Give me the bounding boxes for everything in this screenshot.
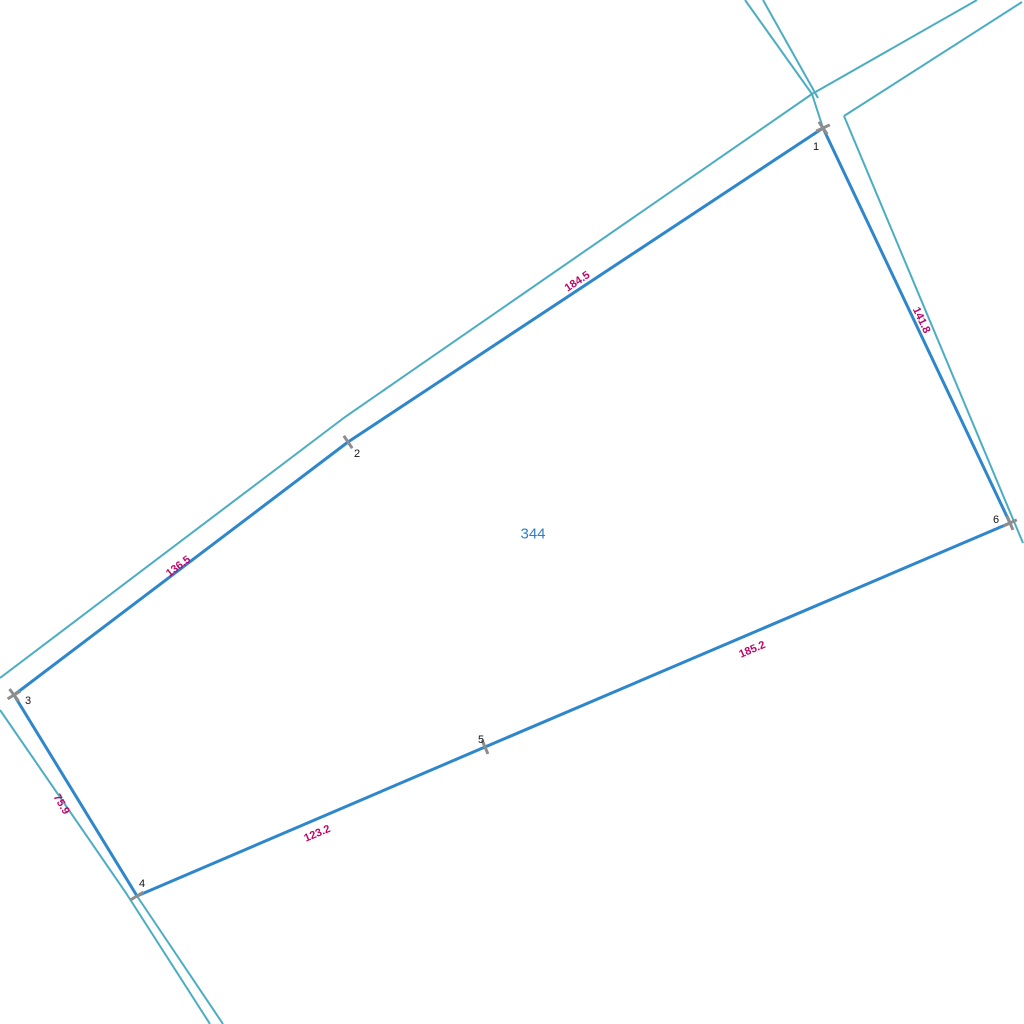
map-viewport[interactable]: 184.5136.575.9123.2185.2141.8123456344 bbox=[0, 0, 1024, 1024]
vertex-number: 4 bbox=[139, 878, 145, 890]
cadastral-map-canvas[interactable]: 184.5136.575.9123.2185.2141.8123456344 bbox=[0, 0, 1024, 1024]
vertex-number: 5 bbox=[478, 734, 484, 746]
parcel-number-label: 344 bbox=[520, 525, 545, 542]
vertex-number: 3 bbox=[25, 695, 31, 707]
vertex-number: 2 bbox=[354, 448, 360, 460]
map-background bbox=[0, 0, 1024, 1024]
vertex-number: 6 bbox=[993, 514, 999, 526]
vertex-number: 1 bbox=[813, 141, 819, 153]
